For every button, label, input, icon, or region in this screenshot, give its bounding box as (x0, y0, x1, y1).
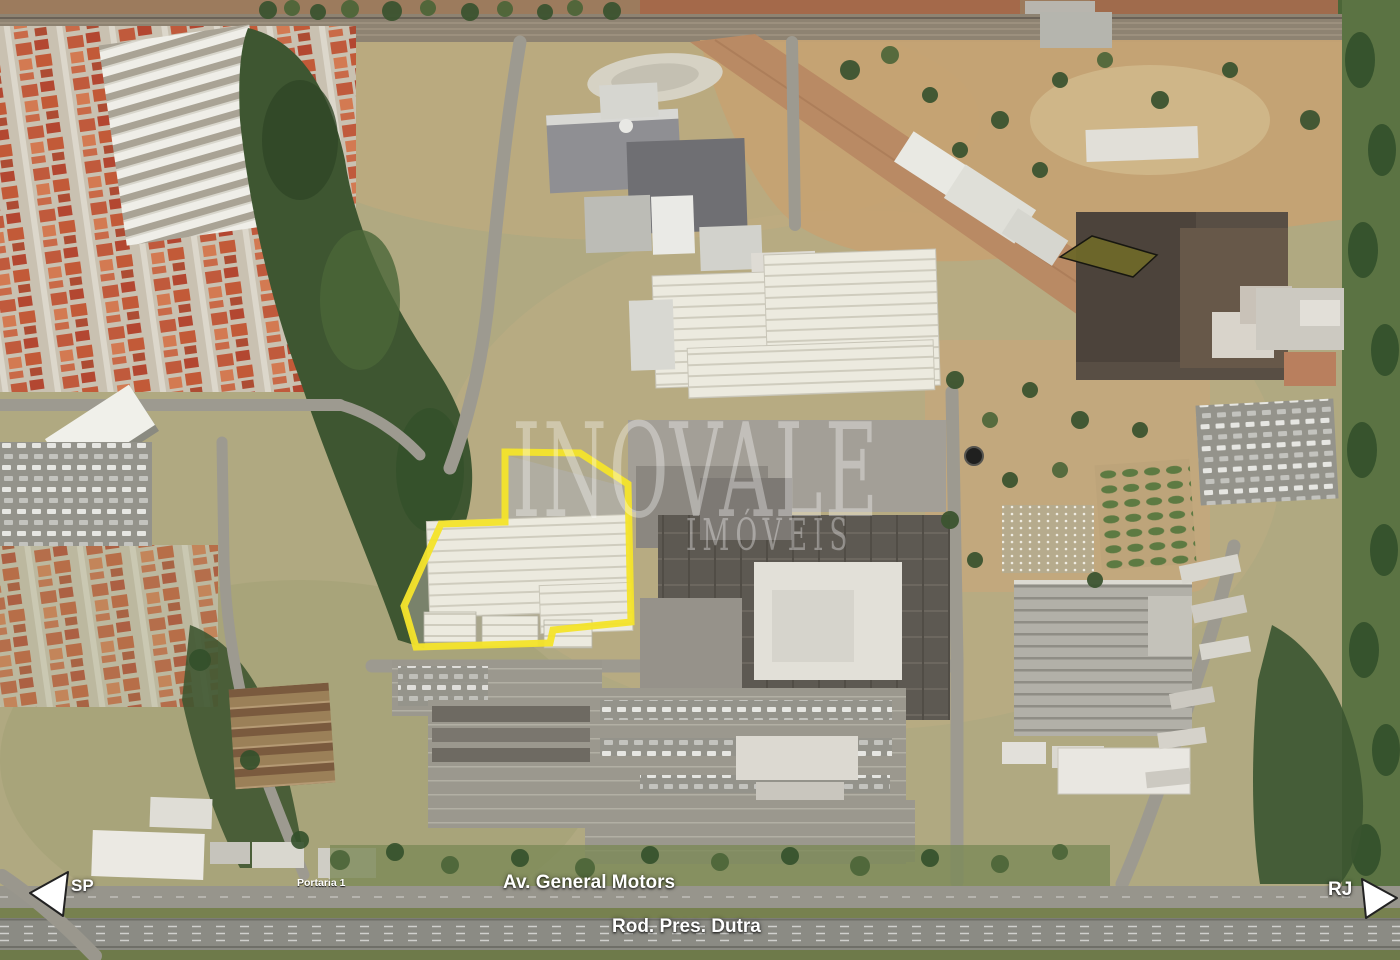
direction-label-rj: RJ (1328, 879, 1352, 901)
storage-yard (1002, 505, 1094, 573)
orchard-rows (1094, 459, 1196, 570)
car-storage-lot (1195, 398, 1338, 505)
satellite-map-canvas: INOVALE IMÓVEIS Portaria 1 Av. General M… (0, 0, 1400, 960)
west-parking-lot (0, 442, 152, 546)
highway-name-label: Rod. Pres. Dutra (612, 916, 761, 938)
greenhouse-sheds (229, 683, 336, 790)
direction-label-sp: SP (71, 876, 94, 896)
gate-label: Portaria 1 (297, 877, 345, 889)
avenue-name-label: Av. General Motors (503, 872, 675, 894)
east-warehouse (1002, 580, 1192, 794)
aerial-imagery (0, 0, 1400, 960)
water-tank (965, 447, 983, 465)
